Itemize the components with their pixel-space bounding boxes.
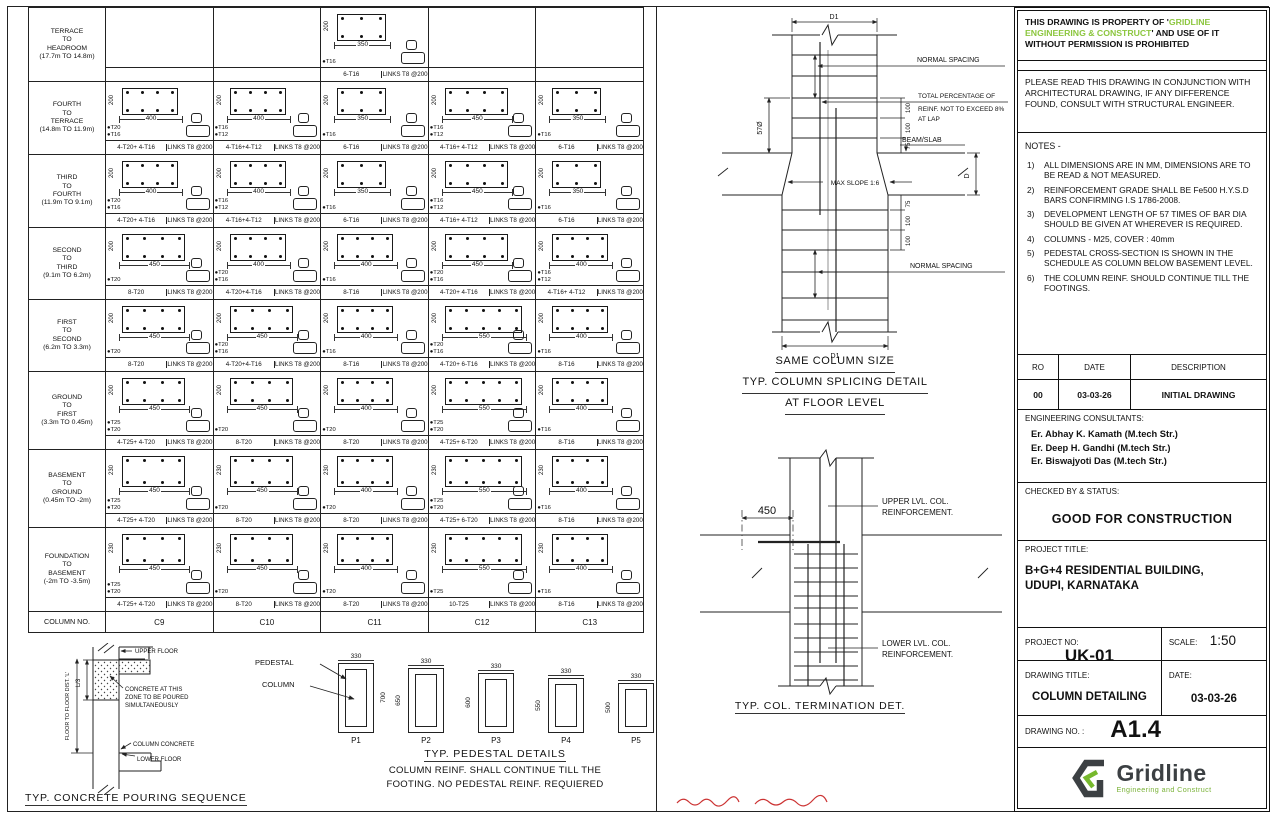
level-label: THIRDTOFOURTH(11.9m TO 9.1m) [29,155,105,228]
main-reinforcement: 6-T16 [321,144,381,151]
link-icons [508,408,532,432]
rebar-dot [449,459,452,462]
width-dim: 400 [549,334,613,341]
width-dim: 450 [119,262,190,269]
section-drawing: 230400●T16 [536,528,643,597]
bar-type-labels: ●T25●T20 [107,498,121,512]
drawing-title-value: COLUMN DETAILING [1025,691,1154,703]
links-spec: LINKS T8 @200 [489,361,535,368]
main-reinforcement: 4-T25+ 4-T20 [106,439,166,446]
schedule-cell: 200400●T168-T16LINKS T8 @200 [535,300,643,372]
note-item-5: 5)PEDESTAL CROSS-SECTION IS SHOWN IN THE… [1025,248,1259,269]
depth-dim: 200 [432,303,438,333]
width-dim: 400 [334,334,398,341]
pedestal-title: TYP. PEDESTAL DETAILS [335,748,655,760]
reinforcement-strip: 8-T16LINKS T8 @200 [536,435,643,449]
lap-length-dim: 57Ø [757,121,764,135]
links-spec: LINKS T8 @200 [381,289,427,296]
reinforcement-strip [429,67,536,81]
rebar-dot [356,327,359,330]
spacing-dim-100a: 100 [906,102,912,113]
links-spec: LINKS T8 @200 [489,439,535,446]
rebar-dot [371,399,374,402]
rebar-dot [601,537,604,540]
rebar-row-top [234,459,289,462]
rebar-dot [482,399,485,402]
date-cell: DATE: 03-03-26 [1162,661,1266,715]
rebar-row-top [449,91,504,94]
main-reinforcement: 4-T16+ 4-T12 [429,217,489,224]
rebar-dot [556,164,559,167]
rebar-dot [251,559,254,562]
bar-type-labels: ●T16 [322,205,336,212]
rebar-dot [515,459,518,462]
links-spec: LINKS T8 @200 [274,144,320,151]
d-dim: D [964,173,971,178]
rebar-dot [449,255,452,258]
column-section [122,234,185,261]
rebar-dot [234,399,237,402]
rebar-row-bottom [556,109,597,112]
link-icons [401,570,425,594]
reinforcement-strip: 6-T16LINKS T8 @200 [321,140,428,154]
pedestal-name: P1 [351,736,361,746]
rebar-dot [249,182,252,185]
main-reinforcement: 6-T16 [536,217,596,224]
pedestal-outline: 600 [478,673,514,733]
pedestal-height-dim: 550 [535,700,542,711]
date-value: 03-03-26 [1169,693,1259,705]
floor-dist-label: FLOOR TO FLOOR DIST. 'L' [65,672,71,741]
section-drawing: 200400●T16 [321,300,428,357]
rebar-dot [251,481,254,484]
main-reinforcement: 8-T20 [321,601,381,608]
rebar-dot [501,109,504,112]
width-dim: 400 [334,406,398,413]
pedestal-height-dim: 700 [380,692,387,703]
main-reinforcement: 8-T20 [214,517,274,524]
rebar-row-top [556,309,604,312]
reinforcement-strip: 4-T16+ 4-T12LINKS T8 @200 [429,140,536,154]
reinforcement-strip: 8-T20LINKS T8 @200 [321,513,428,527]
rebar-dot [161,327,164,330]
reinforcement-strip: 6-T16LINKS T8 @200 [321,67,428,81]
rebar-row-bottom [234,255,282,258]
rebar-dot [178,399,181,402]
schedule-cell: 200350●T166-T16LINKS T8 @200 [320,82,428,155]
link-tie-icon [621,408,632,418]
logo-text: Gridline Engineering and Construct [1116,762,1211,794]
rebar-dot [141,91,144,94]
d1-top-dim: D1 [830,14,839,21]
link-tie-icon [616,582,640,594]
links-spec: LINKS T8 @200 [597,361,643,368]
link-tie-icon [293,498,317,510]
reinforcement-strip: 8-T20LINKS T8 @200 [214,597,321,611]
rebar-dot [286,327,289,330]
rebar-dot [143,537,146,540]
width-dim: 400 [549,488,613,495]
rebar-row-bottom [234,399,289,402]
main-reinforcement: 4-T25+ 6-T20 [429,517,489,524]
rebar-dot [371,481,374,484]
main-reinforcement: 4-T20+4-T16 [214,361,274,368]
rebar-dot [571,381,574,384]
link-icons [401,113,425,137]
rebar-row-top [234,91,282,94]
rebar-dot [161,381,164,384]
rebar-dot [515,399,518,402]
links-spec: LINKS T8 @200 [166,361,212,368]
link-tie-icon [621,113,632,123]
schedule-cell: 200400●T20●T164-T20+4-T16LINKS T8 @200 [213,228,321,300]
depth-dim: 200 [432,158,438,188]
rebar-row-bottom [341,327,389,330]
link-tie-icon [298,408,309,418]
rebar-dot [571,481,574,484]
lower-reinf-label-line2: REINFORCEMENT. [882,650,953,659]
rebar-dot [360,109,363,112]
property-notice: THIS DRAWING IS PROPERTY OF 'GRIDLINE EN… [1018,11,1266,61]
rebar-row-top [449,309,518,312]
project-title-label: PROJECT TITLE: [1025,545,1259,554]
rebar-row-bottom [126,109,174,112]
rebar-dot [251,537,254,540]
rebar-dot [465,481,468,484]
link-tie-icon [621,330,632,340]
company-logo: Gridline Engineering and Construct [1018,748,1266,808]
link-icons [293,486,317,510]
link-icons [293,186,317,210]
column-section [552,161,601,188]
bar-type-labels: ●T16 [322,59,336,66]
rebar-row-bottom [556,559,604,562]
section-drawing: 200550●T25●T20 [429,372,536,435]
link-icons [508,113,532,137]
width-dim: 450 [442,116,513,123]
pedestal-note-line2: FOOTING. NO PEDESTAL REINF. REQUIERED [330,778,660,792]
termination-detail-diagram: 450 UPPER LVL. COL. REINFORCEMENT. LOWER… [690,428,1010,718]
links-spec: LINKS T8 @200 [489,601,535,608]
notes-heading: NOTES - [1025,141,1259,151]
link-tie-icon [406,40,417,50]
reinforcement-strip: 4-T20+4-T16LINKS T8 @200 [214,285,321,299]
spacing-dim-100d: 100 [906,235,912,246]
rebar-row-top [126,237,181,240]
rebar-dot [143,481,146,484]
rebar-dot [268,399,271,402]
reinforcement-strip: 8-T20LINKS T8 @200 [214,513,321,527]
rebar-dot [556,237,559,240]
links-spec: LINKS T8 @200 [166,289,212,296]
normal-spacing-top-label: NORMAL SPACING [917,57,980,64]
column-outline [625,689,647,727]
rebar-dot [586,481,589,484]
rebar-dot [386,237,389,240]
section-drawing: 200450●T20●T16 [214,300,321,357]
rebar-dot [341,164,344,167]
rebar-dot [234,91,237,94]
link-tie-icon [401,582,425,594]
pedestal-name: P5 [631,736,641,746]
rebar-dot [465,309,468,312]
column-section [122,378,185,405]
rebar-dot [143,255,146,258]
section-drawing: 200400●T20●T16 [106,155,213,213]
link-tie-icon [298,330,309,340]
rebar-dot [556,309,559,312]
rebar-dot [482,481,485,484]
rebar-dot [341,399,344,402]
rebar-row-top [341,537,389,540]
rebar-dot [178,237,181,240]
level-label: TERRACETOHEADROOM(17.7m TO 14.8m) [29,8,105,82]
bar-type-labels: ●T16●T12 [215,198,229,212]
links-spec: LINKS T8 @200 [166,517,212,524]
scale-label: SCALE: [1169,638,1197,647]
rebar-dot [161,309,164,312]
rebar-dot [234,255,237,258]
link-tie-icon [186,125,210,137]
section-drawing: 200350●T16 [536,82,643,140]
links-spec: LINKS T8 @200 [381,517,427,524]
rebar-dot [141,182,144,185]
rebar-dot [601,459,604,462]
links-spec: LINKS T8 @200 [274,217,320,224]
rebar-dot [171,182,174,185]
schedule-cell [535,8,643,82]
rebar-dot [465,459,468,462]
rebar-dot [482,327,485,330]
width-dim: 450 [442,262,513,269]
link-tie-icon [616,270,640,282]
rebar-dot [161,399,164,402]
pedestal-note-line1: COLUMN REINF. SHALL CONTINUE TILL THE [330,764,660,778]
rebar-dot [586,255,589,258]
link-tie-icon [406,258,417,268]
rebar-dot [501,255,504,258]
link-icons [401,330,425,354]
rebar-dot [386,537,389,540]
rebar-dot [498,381,501,384]
schedule-cell: 200350●T166-T16LINKS T8 @200 [320,155,428,228]
links-spec: LINKS T8 @200 [274,517,320,524]
link-tie-icon [401,498,425,510]
rebar-dot [161,459,164,462]
bar-type-labels: ●T25●T20 [107,582,121,596]
reinforcement-strip: 8-T20LINKS T8 @200 [321,435,428,449]
rebar-dot [341,537,344,540]
rebar-dot [482,309,485,312]
rebar-row-top [556,459,604,462]
main-reinforcement: 10-T25 [429,601,489,608]
links-spec: LINKS T8 @200 [597,601,643,608]
vertical-divider [656,7,657,811]
width-dim: 400 [549,262,613,269]
rebar-dot [465,399,468,402]
main-reinforcement: 6-T16 [321,71,381,78]
date-label: DATE: [1169,671,1192,680]
rebar-row-top [556,537,604,540]
logo-name: Gridline [1116,762,1211,784]
drawing-title-date-row: DRAWING TITLE: COLUMN DETAILING DATE: 03… [1018,661,1266,716]
main-reinforcement: 8-T20 [214,439,274,446]
rebar-dot [594,91,597,94]
link-icons [616,186,640,210]
depth-dim: 200 [109,85,115,115]
splicing-detail-title: SAME COLUMN SIZE TYP. COLUMN SPLICING DE… [660,352,1010,415]
link-tie-icon [401,198,425,210]
schedule-cell: 200400●T20●T164-T20+ 4-T16LINKS T8 @200 [105,82,213,155]
rebar-dot [143,237,146,240]
section-drawing: 200450●T20 [106,228,213,285]
link-tie-icon [401,52,425,64]
revision-header-ro: RO [1018,355,1058,379]
reinforcement-strip: 8-T16LINKS T8 @200 [536,357,643,371]
upper-floor-label: UPPER FLOOR [135,649,179,655]
rebar-dot [143,399,146,402]
section-drawing: 200450●T20 [214,372,321,435]
links-spec: LINKS T8 @200 [274,601,320,608]
link-icons [616,408,640,432]
bar-type-labels: ●T20 [215,589,229,596]
rebar-dot [449,559,452,562]
rebar-dot [601,381,604,384]
rebar-dot [571,459,574,462]
schedule-cell: 200400●T20●T164-T20+ 4-T16LINKS T8 @200 [105,155,213,228]
rebar-dot [341,327,344,330]
pedestal-p3: 330600P3 [478,663,514,746]
pedestal-name: P3 [491,736,501,746]
width-dim: 450 [119,406,190,413]
rebar-dot [449,327,452,330]
rebar-dot [171,109,174,112]
spacing-dim-100b: 100 [906,122,912,133]
reinforcement-strip: 4-T20+ 4-T16LINKS T8 @200 [106,140,213,154]
bar-type-labels: ●T16 [537,132,551,139]
reinforcement-strip: 4-T16+4-T12LINKS T8 @200 [214,213,321,227]
reinforcement-strip: 4-T20+ 6-T16LINKS T8 @200 [429,357,536,371]
rebar-dot [126,481,129,484]
rebar-dot [586,327,589,330]
links-spec: LINKS T8 @200 [166,144,212,151]
rebar-dot [449,381,452,384]
depth-dim: 230 [109,455,115,485]
bar-type-labels: ●T20 [107,349,121,356]
link-tie-icon [513,186,524,196]
link-tie-icon [406,408,417,418]
rebar-dot [386,459,389,462]
rebar-dot [575,182,578,185]
links-spec: LINKS T8 @200 [489,517,535,524]
rebar-dot [556,381,559,384]
rebar-dot [178,537,181,540]
rebar-dot [379,35,382,38]
links-spec: LINKS T8 @200 [597,217,643,224]
link-tie-icon [401,125,425,137]
link-tie-icon [621,258,632,268]
section-drawing: 230450●T25●T20 [106,450,213,513]
link-tie-icon [401,420,425,432]
column-no: C12 [428,612,536,632]
rebar-dot [360,182,363,185]
schedule-cell [428,8,536,82]
depth-dim: 200 [109,303,115,333]
main-reinforcement: 4-T25+ 4-T20 [106,517,166,524]
max-slope-label: MAX SLOPE 1:6 [831,180,880,187]
rebar-dot [279,164,282,167]
width-dim: 350 [549,116,606,123]
rebar-dot [594,182,597,185]
column-outline [555,684,577,727]
section-drawing: 200400●T16 [321,228,428,285]
pedestal-p4: 330550P4 [548,668,584,746]
rebar-dot [386,309,389,312]
rebar-dot [571,399,574,402]
links-spec: LINKS T8 @200 [381,71,427,78]
rebar-row-bottom [556,255,604,258]
rebar-dot [126,255,129,258]
rebar-dot [501,91,504,94]
rebar-dot [143,559,146,562]
zone-note-line1: CONCRETE AT THIS [125,687,182,693]
rebar-dot [249,91,252,94]
rebar-dot [379,109,382,112]
section-drawing: 200350●T16 [321,82,428,140]
column-no-label: COLUMN NO. [29,612,105,632]
reinforcement-strip: 10-T25LINKS T8 @200 [429,597,536,611]
schedule-cell: 200400●T16●T124-T16+4-T12LINKS T8 @200 [213,82,321,155]
section-drawing: 200450●T16●T12 [429,155,536,213]
rebar-dot [501,237,504,240]
rebar-dot [498,459,501,462]
links-spec: LINKS T8 @200 [381,217,427,224]
schedule-cell: 200450●T16●T124-T16+ 4-T12LINKS T8 @200 [428,155,536,228]
rebar-dot [234,182,237,185]
bar-type-labels: ●T16 [537,205,551,212]
column-section [230,88,286,115]
link-tie-icon [508,125,532,137]
rebar-dot [466,237,469,240]
link-tie-icon [616,198,640,210]
main-reinforcement: 4-T20+4-T16 [214,289,274,296]
reinforcement-strip: 8-T20LINKS T8 @200 [214,435,321,449]
rebar-dot [360,91,363,94]
rebar-dot [465,381,468,384]
link-tie-icon [616,498,640,510]
revision-table: RO DATE DESCRIPTION 00 03-03-26 INITIAL … [1018,355,1266,410]
section-drawing: 230400●T20 [321,450,428,513]
main-reinforcement: 4-T20+ 4-T16 [106,217,166,224]
rebar-dot [556,327,559,330]
width-dim: 450 [227,488,298,495]
rebar-row-top [341,17,382,20]
rebar-row-bottom [449,399,518,402]
rebar-dot [449,237,452,240]
rebar-dot [126,164,129,167]
column-section [337,234,393,261]
rebar-dot [161,559,164,562]
section-drawing: 230450●T20 [214,450,321,513]
notes-section: NOTES - 1)ALL DIMENSIONS ARE IN MM, DIME… [1018,133,1266,355]
section-drawing: 200400●T20●T16 [106,82,213,140]
rebar-dot [601,309,604,312]
level-label: FOUNDATIONTOBASEMENT(-2m TO -3.5m) [29,528,105,612]
schedule-cell: 200350●T166-T16LINKS T8 @200 [535,155,643,228]
link-icons [186,330,210,354]
schedule-cell: 230400●T168-T16LINKS T8 @200 [535,450,643,528]
rebar-dot [575,164,578,167]
